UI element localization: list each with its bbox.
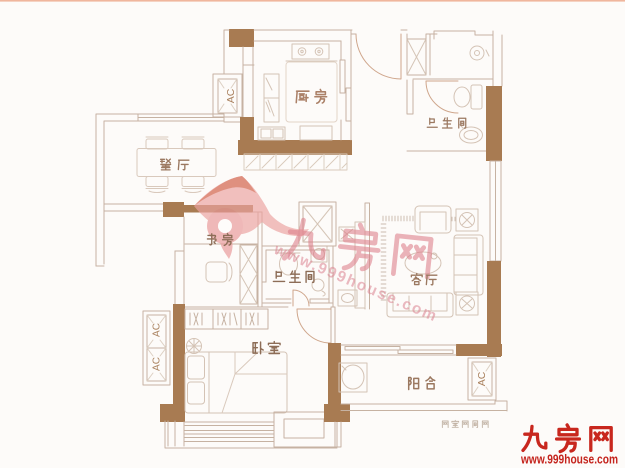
svg-text:AC: AC: [476, 371, 488, 386]
svg-text:AC: AC: [225, 88, 237, 103]
svg-text:AC: AC: [152, 357, 163, 371]
svg-text:www.999house.com: www.999house.com: [520, 452, 618, 467]
svg-text:AC: AC: [152, 323, 163, 337]
